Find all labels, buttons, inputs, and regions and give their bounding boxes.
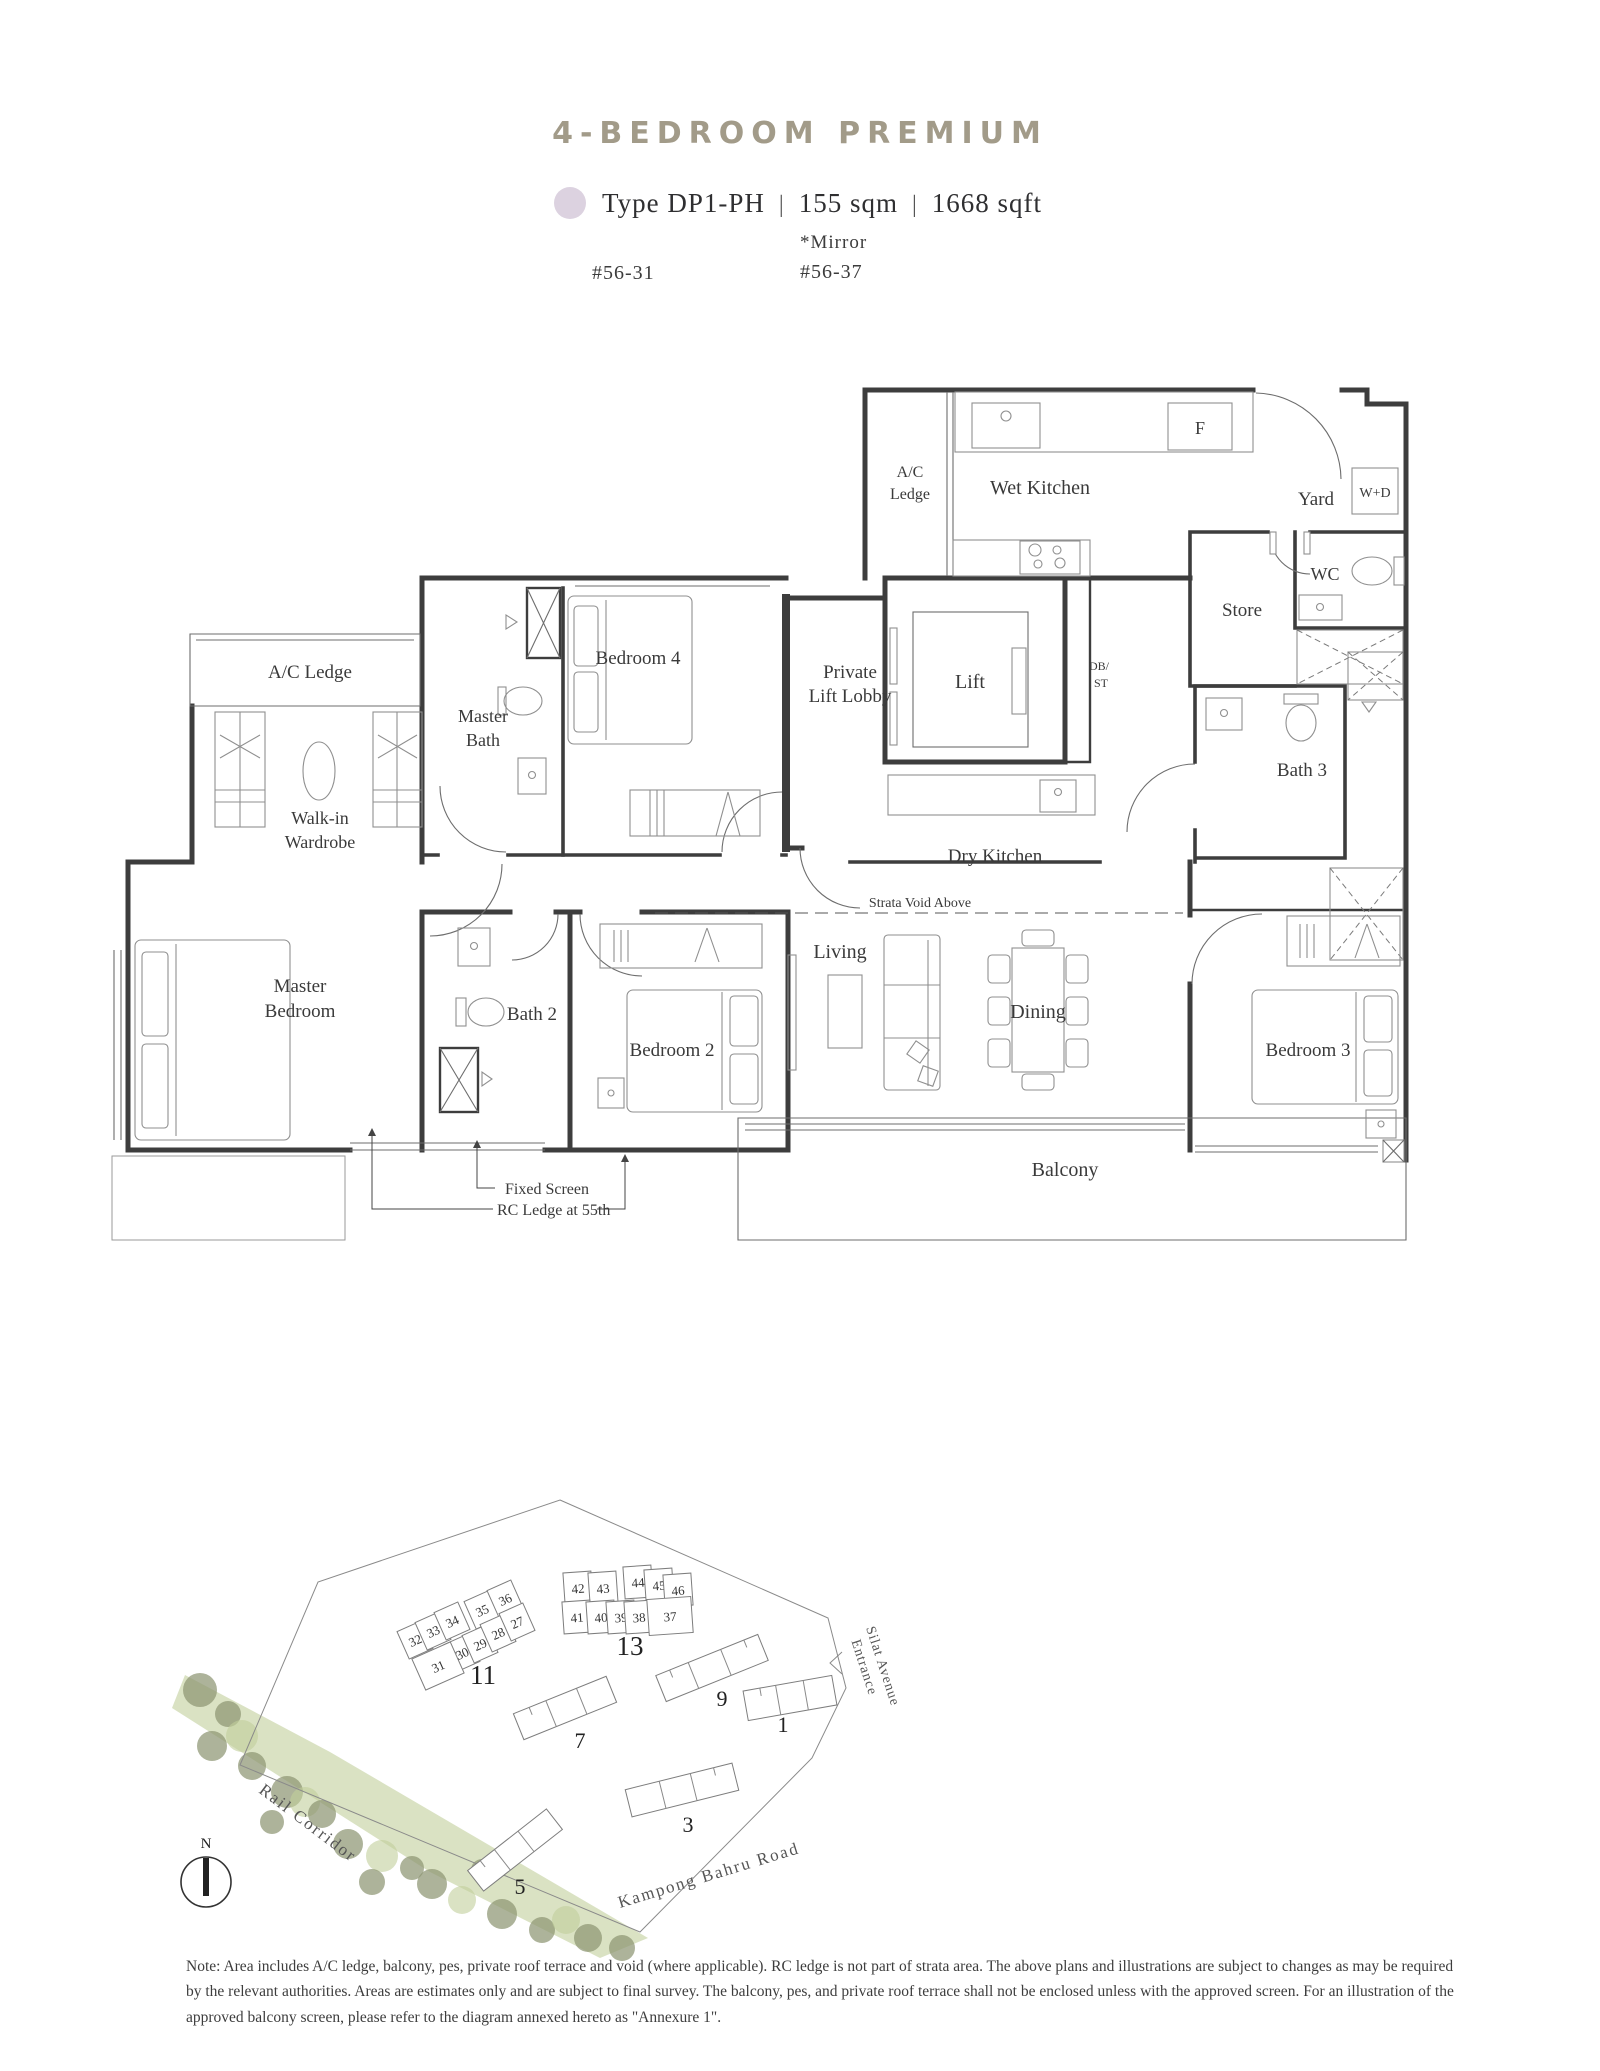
- stack-41: 41: [570, 1610, 584, 1626]
- label-rc-ledge: RC Ledge at 55th: [497, 1202, 610, 1219]
- stack-number-left: #56-31: [592, 262, 655, 285]
- mirror-unit-block: *Mirror #56-37: [800, 232, 867, 284]
- separator: |: [912, 192, 918, 218]
- label-db-2: ST: [1094, 676, 1109, 690]
- building-9-number: 9: [717, 1686, 728, 1711]
- label-bath-3: Bath 3: [1277, 760, 1327, 781]
- separator: |: [779, 192, 785, 218]
- floor-plan-page: 4-BEDROOM PREMIUM Type DP1-PH|155 sqm|16…: [0, 0, 1600, 2071]
- stack-40: 40: [594, 1610, 608, 1626]
- building-1-number: 1: [778, 1712, 789, 1737]
- entrance-arrow-icon: [830, 1652, 842, 1674]
- building-7-number: 7: [575, 1728, 586, 1753]
- label-strata-void: Strata Void Above: [869, 896, 971, 911]
- label-walk-in-1: Walk-in: [291, 808, 349, 828]
- label-bedroom-2: Bedroom 2: [630, 1040, 715, 1061]
- compass-n-label: N: [201, 1836, 212, 1852]
- block-11: 32 33 34 35 36 30 29 28 27 31 11: [397, 1580, 535, 1690]
- annotation-arrows: [368, 1128, 629, 1209]
- label-wc: WC: [1311, 564, 1340, 584]
- label-dining: Dining: [1010, 1001, 1066, 1023]
- area-sqft: 1668 sqft: [932, 188, 1042, 218]
- block-13-number: 13: [617, 1631, 644, 1661]
- label-bedroom-3: Bedroom 3: [1266, 1040, 1351, 1061]
- stack-37: 37: [663, 1609, 678, 1625]
- label-lift-lobby-2: Lift Lobby: [809, 686, 892, 707]
- room-labels: A/C Ledge Wet Kitchen F Yard W+D WC Stor…: [265, 418, 1391, 1219]
- label-bedroom-4: Bedroom 4: [596, 648, 681, 669]
- stack-38: 38: [632, 1610, 646, 1626]
- stack-number-right: #56-37: [800, 261, 867, 284]
- label-ac-ledge-left: A/C Ledge: [268, 662, 352, 683]
- label-dry-kitchen: Dry Kitchen: [948, 846, 1043, 867]
- page-title: 4-BEDROOM PREMIUM: [0, 116, 1600, 151]
- label-balcony: Balcony: [1032, 1159, 1099, 1181]
- compass-needle: [203, 1858, 209, 1896]
- label-master-bath-1: Master: [458, 706, 508, 726]
- block-11-number: 11: [470, 1660, 496, 1690]
- stack-42: 42: [571, 1581, 585, 1597]
- silat-avenue-label: Silat Avenue Entrance: [845, 1625, 902, 1714]
- label-ac-ledge-top-1: A/C: [897, 464, 924, 481]
- building-3: 3: [625, 1763, 739, 1837]
- building-7: 7: [513, 1676, 616, 1753]
- block-13: 42 43 44 45 46 41 40 39 38 37 13: [562, 1565, 693, 1661]
- site-plan-drawing: 32 33 34 35 36 30 29 28 27 31 11: [140, 1430, 1180, 1970]
- label-walk-in-2: Wardrobe: [285, 832, 356, 852]
- label-master-bath-2: Bath: [466, 730, 500, 750]
- disclaimer-note: Note: Area includes A/C ledge, balcony, …: [186, 1954, 1458, 2031]
- label-fixed-screen: Fixed Screen: [505, 1181, 589, 1198]
- label-fridge: F: [1195, 418, 1205, 438]
- unit-type-legend: Type DP1-PH|155 sqm|1668 sqft: [553, 186, 1042, 220]
- label-yard: Yard: [1298, 489, 1335, 510]
- area-sqm: 155 sqm: [799, 188, 898, 218]
- building-5-number: 5: [515, 1874, 526, 1899]
- unit-type-line: Type DP1-PH|155 sqm|1668 sqft: [602, 188, 1042, 219]
- label-store: Store: [1222, 600, 1262, 621]
- label-lift: Lift: [955, 671, 985, 693]
- stack-46: 46: [671, 1583, 686, 1599]
- walls-thick: [128, 390, 1406, 1160]
- building-3-number: 3: [683, 1812, 694, 1837]
- mirror-label: *Mirror: [800, 232, 867, 253]
- legend-dot: [554, 187, 586, 219]
- label-ac-ledge-top-2: Ledge: [890, 486, 930, 503]
- label-db-1: DB/: [1089, 659, 1110, 673]
- label-master-bedroom-1: Master: [274, 976, 327, 997]
- building-1: 1: [743, 1675, 837, 1737]
- unit-type: Type DP1-PH: [602, 188, 765, 218]
- stack-44: 44: [631, 1575, 646, 1591]
- legend-dot-icon: [553, 186, 587, 220]
- label-lift-lobby-1: Private: [823, 662, 877, 683]
- stack-43: 43: [596, 1581, 610, 1597]
- north-compass: N: [181, 1836, 231, 1907]
- kampong-bahru-road-label: Kampong Bahru Road: [616, 1838, 802, 1911]
- label-bath-2: Bath 2: [507, 1004, 557, 1025]
- label-wet-kitchen: Wet Kitchen: [990, 477, 1090, 499]
- label-washer-dryer: W+D: [1359, 486, 1390, 501]
- floor-plan-drawing: A/C Ledge Wet Kitchen F Yard W+D WC Stor…: [100, 370, 1440, 1260]
- label-living: Living: [813, 941, 866, 963]
- label-master-bedroom-2: Bedroom: [265, 1001, 336, 1022]
